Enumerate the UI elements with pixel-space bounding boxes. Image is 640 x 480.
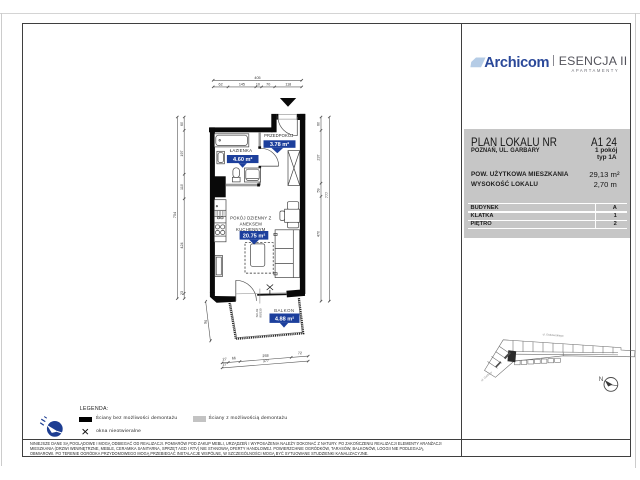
svg-text:424: 424 <box>180 242 184 248</box>
svg-text:20.75 m²: 20.75 m² <box>243 233 266 240</box>
svg-text:4.88 m²: 4.88 m² <box>275 316 294 323</box>
svg-text:66: 66 <box>232 356 236 360</box>
svg-text:ul. Estkowskiego: ul. Estkowskiego <box>543 332 565 337</box>
svg-text:59: 59 <box>317 188 321 192</box>
svg-text:N: N <box>599 376 604 383</box>
svg-text:96: 96 <box>203 320 207 325</box>
svg-text:90/230: 90/230 <box>259 308 263 318</box>
svg-text:777: 777 <box>325 192 329 198</box>
svg-text:60: 60 <box>317 122 321 126</box>
svg-text:470: 470 <box>317 231 321 237</box>
svg-text:27: 27 <box>222 362 226 366</box>
svg-text:10: 10 <box>256 83 260 87</box>
svg-text:258: 258 <box>262 354 268 358</box>
svg-text:237: 237 <box>317 154 321 160</box>
svg-text:4.60 m²: 4.60 m² <box>233 156 252 163</box>
svg-text:197: 197 <box>180 150 184 156</box>
svg-text:3.78 m²: 3.78 m² <box>270 141 289 148</box>
svg-text:70: 70 <box>266 83 270 87</box>
svg-text:118: 118 <box>285 83 291 87</box>
svg-text:110: 110 <box>180 184 184 190</box>
svg-text:POKÓJ DZIENNY Z: POKÓJ DZIENNY Z <box>230 216 272 221</box>
svg-text:27: 27 <box>222 357 226 361</box>
svg-text:ŁAZIENKA: ŁAZIENKA <box>230 148 252 153</box>
svg-text:ANEKSEM: ANEKSEM <box>240 221 263 226</box>
svg-text:60: 60 <box>180 122 184 126</box>
svg-text:62: 62 <box>219 83 223 87</box>
svg-text:145: 145 <box>239 83 245 87</box>
svg-text:754: 754 <box>173 212 177 218</box>
svg-text:377: 377 <box>263 359 269 363</box>
svg-text:405: 405 <box>254 76 260 80</box>
svg-text:BALKON: BALKON <box>274 308 294 313</box>
svg-text:23: 23 <box>180 291 184 295</box>
svg-text:72: 72 <box>298 351 302 355</box>
svg-text:PRZEDPOKÓJ: PRZEDPOKÓJ <box>264 133 293 138</box>
